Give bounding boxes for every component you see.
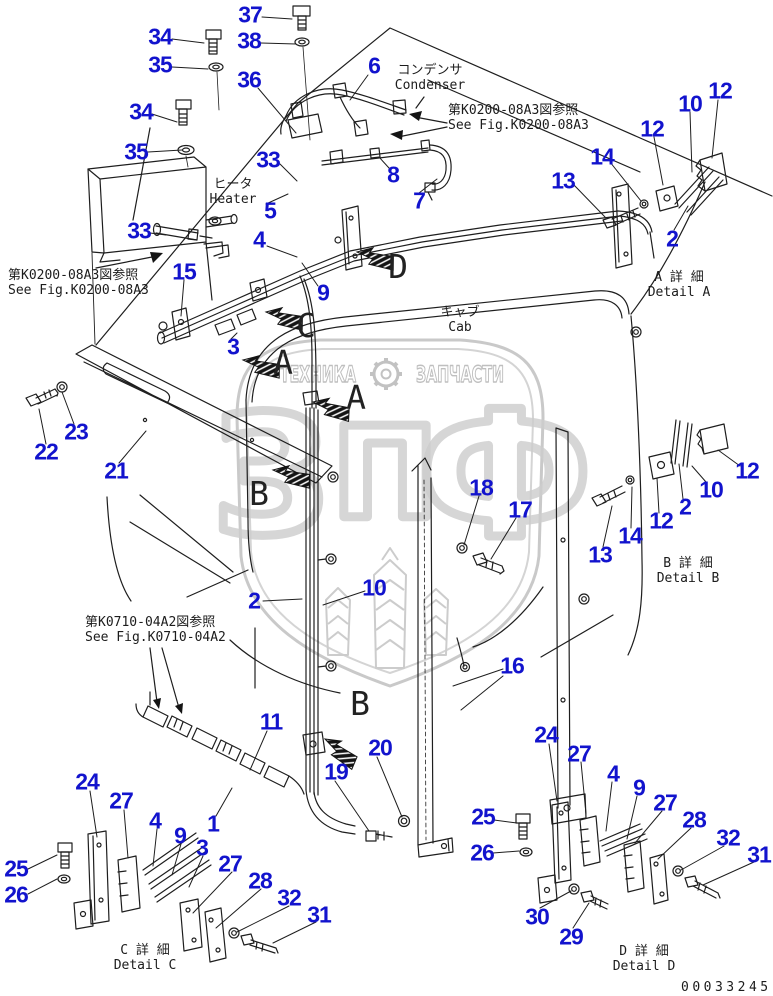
- part-label-14-20: 14: [590, 146, 614, 169]
- part-label-27-46: 27: [218, 853, 242, 876]
- part-label-8-9: 8: [387, 164, 399, 187]
- part-label-17-27: 17: [508, 499, 532, 522]
- part-label-26-51: 26: [4, 884, 28, 907]
- watermark-logo: З П Ф ТЕХНИКА ЗАПЧАСТИ: [212, 340, 591, 686]
- part-label-18-26: 18: [469, 477, 493, 500]
- pipe-33: [154, 224, 230, 259]
- view-letter-D-0: D: [388, 247, 408, 286]
- view-letter-B-4: B: [249, 474, 269, 513]
- part-label-14-29: 14: [618, 525, 642, 548]
- see-fig-0710: 第K0710-04A2図参照See Fig.K0710-04A2: [85, 615, 226, 645]
- part-label-22-23: 22: [34, 441, 58, 464]
- detail-d-label: D 詳 細Detail D: [613, 944, 676, 974]
- part-label-4-13: 4: [253, 229, 265, 252]
- part-label-11-37: 11: [260, 711, 282, 734]
- heater-label: ヒータHeater: [210, 177, 257, 207]
- bolt-37: [293, 6, 310, 140]
- part-label-25-60: 25: [471, 806, 495, 829]
- bolt-34-upper: [206, 30, 223, 110]
- part-label-13-28: 13: [588, 544, 612, 567]
- part-label-34-1: 34: [148, 26, 172, 49]
- part-label-36-4: 36: [237, 69, 261, 92]
- gear-icon: [370, 358, 402, 390]
- part-label-10-18: 10: [678, 93, 702, 116]
- watermark-letter-f: Ф: [418, 375, 592, 578]
- part-label-9-43: 9: [174, 825, 186, 848]
- part-label-29-63: 29: [559, 926, 583, 949]
- diagram-canvas: З П Ф ТЕХНИКА ЗАПЧАСТИ: [0, 0, 773, 996]
- view-letter-C-1: C: [296, 306, 316, 345]
- part-label-13-21: 13: [551, 170, 575, 193]
- part-label-9-15: 9: [317, 282, 329, 305]
- hose-connectors-1-11: [136, 692, 304, 794]
- part-label-28-57: 28: [682, 809, 706, 832]
- part-label-10-32: 10: [699, 479, 723, 502]
- part-label-12-17: 12: [640, 118, 664, 141]
- watermark-letter-z: З: [212, 380, 329, 572]
- part-label-35-7: 35: [124, 141, 148, 164]
- pipe-7: [425, 145, 451, 200]
- part-label-15-14: 15: [172, 261, 196, 284]
- part-label-12-30: 12: [649, 510, 673, 533]
- part-label-2-31: 2: [679, 496, 691, 519]
- part-label-20-38: 20: [368, 737, 392, 760]
- part-label-38-2: 38: [237, 30, 261, 53]
- part-label-10-35: 10: [362, 577, 386, 600]
- part-label-2-22: 2: [666, 228, 678, 251]
- pipe-bracket-right: [612, 184, 641, 337]
- part-label-24-52: 24: [534, 724, 558, 747]
- see-fig-left: 第K0200-08A3図参照See Fig.K0200-08A3: [8, 268, 149, 298]
- detail-a-label: A 詳 細Detail A: [648, 270, 711, 300]
- part-label-1-44: 1: [207, 813, 219, 836]
- part-label-9-55: 9: [633, 777, 645, 800]
- watermark-word-right: ЗАПЧАСТИ: [416, 363, 504, 388]
- part-label-31-49: 31: [307, 904, 331, 927]
- cab-label: キャブCab: [440, 305, 479, 335]
- part-label-27-56: 27: [653, 792, 677, 815]
- part-label-4-42: 4: [149, 810, 161, 833]
- detail-b-label: B 詳 細Detail B: [657, 556, 720, 586]
- part-label-24-40: 24: [75, 771, 99, 794]
- part-label-26-61: 26: [470, 842, 494, 865]
- part-label-3-16: 3: [227, 336, 239, 359]
- part-label-34-6: 34: [129, 101, 153, 124]
- parts-diagram-stage: З П Ф ТЕХНИКА ЗАПЧАСТИ: [0, 0, 773, 996]
- part-label-33-12: 33: [127, 220, 151, 243]
- part-label-33-8: 33: [256, 149, 280, 172]
- view-letter-B-5: B: [350, 684, 370, 723]
- part-label-12-19: 12: [708, 80, 732, 103]
- part-label-32-58: 32: [716, 827, 740, 850]
- part-label-31-59: 31: [747, 844, 771, 867]
- view-letter-A-3: A: [346, 378, 366, 417]
- part-label-27-53: 27: [567, 743, 591, 766]
- part-label-16-36: 16: [500, 655, 524, 678]
- part-label-25-50: 25: [4, 858, 28, 881]
- view-letter-A-2: A: [273, 343, 293, 382]
- condenser-label: コンデンサCondenser: [395, 63, 465, 93]
- part-label-28-47: 28: [248, 870, 272, 893]
- part-label-5-11: 5: [264, 200, 276, 223]
- part-label-21-25: 21: [104, 460, 128, 483]
- part-label-35-3: 35: [148, 54, 172, 77]
- part-label-2-34: 2: [248, 590, 260, 613]
- part-label-30-62: 30: [525, 906, 549, 929]
- part-label-27-41: 27: [109, 790, 133, 813]
- condenser-harness: [281, 83, 406, 136]
- part-label-32-48: 32: [277, 887, 301, 910]
- document-number: 00033245: [681, 980, 772, 995]
- part-label-19-39: 19: [324, 761, 348, 784]
- part-label-4-54: 4: [607, 763, 619, 786]
- part-label-37-0: 37: [238, 4, 262, 27]
- part-label-3-45: 3: [196, 837, 208, 860]
- part-label-7-10: 7: [413, 190, 425, 213]
- part-label-6-5: 6: [368, 55, 380, 78]
- bolt-22-washer-23: [26, 382, 67, 406]
- part-label-12-33: 12: [735, 460, 759, 483]
- see-fig-top: 第K0200-08A3図参照See Fig.K0200-08A3: [448, 103, 589, 133]
- pipe-8: [322, 140, 430, 165]
- detail-c-label: C 詳 細Detail C: [114, 943, 177, 973]
- part-label-23-24: 23: [64, 421, 88, 444]
